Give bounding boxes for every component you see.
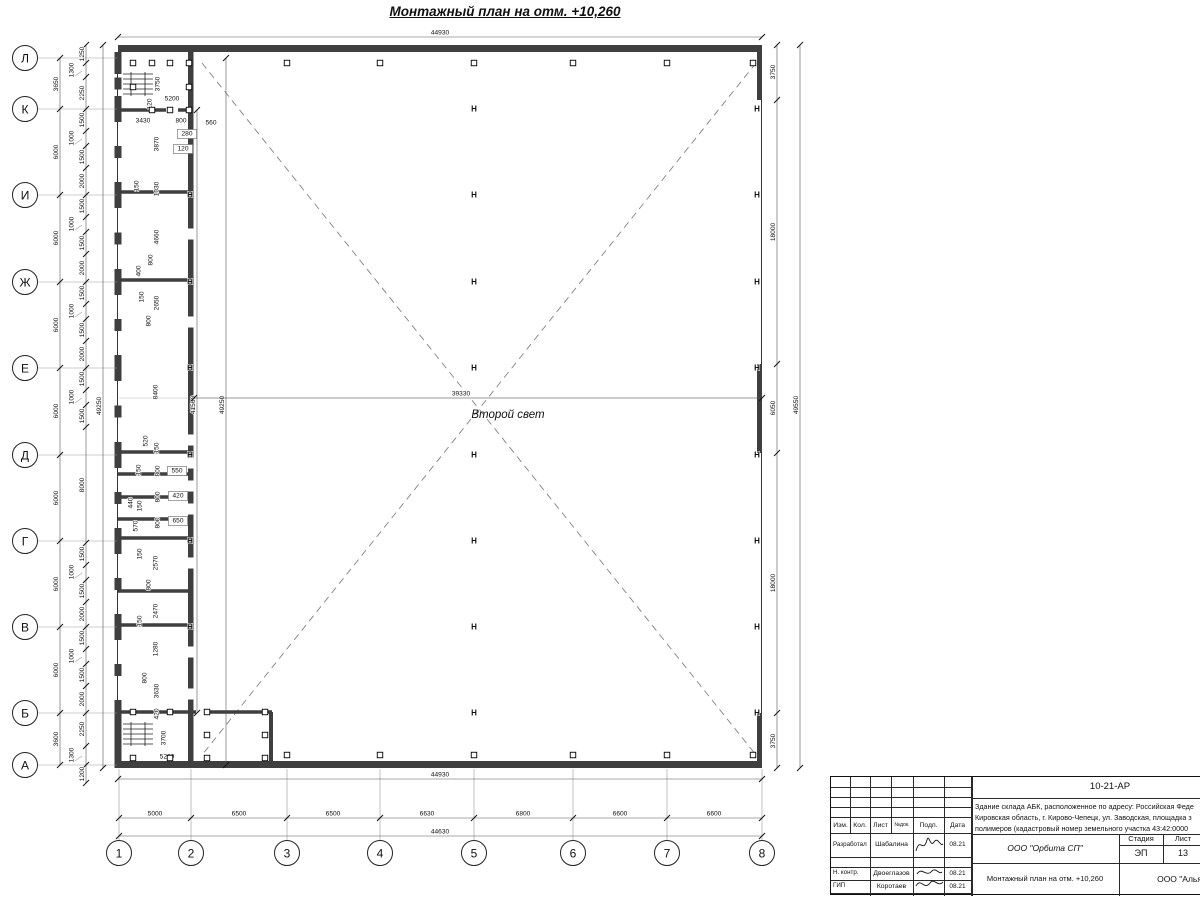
- partition-wall: [118, 536, 193, 540]
- dim-label: 1500: [79, 546, 86, 561]
- h-column-mark: Н: [471, 451, 477, 460]
- tb-company: ООО "Альянс: [1119, 863, 1200, 896]
- tb-role-developer: Разработал: [833, 833, 871, 857]
- dim-label: 150: [134, 180, 141, 191]
- dim-label: 6600: [613, 811, 628, 818]
- left-wall-pier: [115, 319, 122, 331]
- dim-label: 6000: [53, 403, 60, 418]
- dim-leader: [75, 312, 82, 317]
- dim-leader: [75, 756, 82, 761]
- h-column-mark: Н: [187, 623, 193, 632]
- tb-description-line1: Здание склада АБК, расположенное по адре…: [975, 801, 1194, 812]
- dim-label: 550: [171, 468, 182, 475]
- left-wall-pier: [115, 78, 122, 90]
- tb-sheet-label: Лист: [1163, 834, 1200, 845]
- h-column-mark: Н: [754, 364, 760, 373]
- dim-label: 8400: [153, 384, 160, 399]
- top-wall: [118, 45, 762, 52]
- dim-label: 1000: [69, 389, 76, 404]
- column-square: [204, 755, 210, 761]
- left-wall-pier: [115, 406, 122, 418]
- tb-col-izm: Изм.: [831, 818, 850, 833]
- left-wall-pier: [115, 664, 122, 676]
- dim-label: 800: [155, 465, 162, 476]
- h-column-mark: Н: [471, 191, 477, 200]
- tb-line: [831, 807, 971, 808]
- tb-name-developer: Шабалина: [870, 833, 913, 857]
- axis-row-label: Е: [21, 362, 29, 376]
- dim-label: 2000: [79, 260, 86, 275]
- tb-line: [831, 857, 971, 858]
- dim-leader: [75, 657, 82, 662]
- dim-label: 6630: [420, 811, 435, 818]
- h-column-mark: Н: [187, 364, 193, 373]
- bottom-wall: [118, 761, 762, 768]
- dim-label: 3650: [53, 76, 60, 91]
- dim-label: 440: [128, 497, 135, 508]
- dim-label: 5200: [165, 96, 180, 103]
- dim-label: 6000: [53, 230, 60, 245]
- dim-label: 18000: [770, 574, 777, 593]
- dim-label: 6000: [53, 490, 60, 505]
- column-square: [570, 60, 576, 66]
- h-column-mark: Н: [187, 451, 193, 460]
- dim-label: 2250: [79, 85, 86, 100]
- dim-label: 44630: [431, 829, 450, 836]
- dim-label: 150: [137, 615, 144, 626]
- tb-stage-label: Стадия: [1119, 834, 1163, 845]
- dim-label: 1500: [79, 667, 86, 682]
- partition-wall: [118, 278, 193, 282]
- door-opening: [187, 558, 195, 569]
- dim-label: 1500: [79, 285, 86, 300]
- tb-name-gip: Коротаев: [870, 880, 913, 893]
- dim-label: 2000: [79, 346, 86, 361]
- axis-col-label: 5: [471, 847, 478, 861]
- h-column-mark: Н: [471, 709, 477, 718]
- dim-label: 570: [133, 520, 140, 531]
- tb-doc-code: 10-21-АР: [971, 777, 1200, 798]
- dim-leader: [75, 71, 82, 76]
- column-square: [471, 752, 477, 758]
- tb-date-ncontrol: 08.21: [944, 867, 971, 880]
- dim-label: 2000: [79, 173, 86, 188]
- column-square: [262, 755, 268, 761]
- dim-label: 2000: [79, 691, 86, 706]
- dim-leader: [75, 573, 82, 578]
- tb-col-data: Дата: [944, 818, 971, 833]
- dim-label: 1030: [154, 181, 161, 196]
- h-column-mark: Н: [471, 537, 477, 546]
- dim-label: 1300: [69, 62, 76, 77]
- tb-role-gip: ГИП: [833, 880, 871, 893]
- axis-col-label: 7: [664, 847, 671, 861]
- dim-label: 1500: [79, 630, 86, 645]
- axis-col-label: 8: [759, 847, 766, 861]
- axis-col-label: 6: [570, 847, 577, 861]
- tb-org: ООО "Орбита СП": [971, 834, 1119, 863]
- dim-label: 1000: [69, 303, 76, 318]
- column-square: [130, 709, 136, 715]
- signature-developer: [914, 834, 944, 856]
- dim-label: 1500: [79, 149, 86, 164]
- column-square: [377, 60, 383, 66]
- axis-row-label: Д: [21, 449, 29, 463]
- dim-label: 3430: [136, 118, 151, 125]
- h-column-mark: Н: [754, 278, 760, 287]
- axis-col-label: 3: [284, 847, 291, 861]
- column-square: [167, 60, 173, 66]
- h-column-mark: Н: [754, 709, 760, 718]
- column-square: [149, 60, 155, 66]
- dim-label: 2000: [79, 606, 86, 621]
- column-square: [167, 755, 173, 761]
- dim-label: 560: [205, 120, 216, 127]
- dim-label: 44930: [431, 30, 450, 37]
- dim-label: 1500: [79, 408, 86, 423]
- dim-label: 800: [148, 254, 155, 265]
- dim-label: 6500: [232, 811, 247, 818]
- dim-label: 39330: [452, 391, 471, 398]
- axis-row-label: Б: [21, 707, 29, 721]
- dim-label: 2570: [153, 555, 160, 570]
- tb-description-line3: полимеров (кадастровый номер земельного …: [975, 823, 1194, 834]
- dim-label: 1500: [79, 371, 86, 386]
- left-wall-pier: [115, 233, 122, 245]
- column-square: [186, 84, 192, 90]
- dim-label: 6000: [53, 576, 60, 591]
- signature-ncontrol-gip: [914, 866, 944, 893]
- dim-label: 150: [137, 500, 144, 511]
- dim-label: 1500: [79, 112, 86, 127]
- tb-date-gip: 08.21: [944, 880, 971, 893]
- dim-label: 150: [137, 548, 144, 559]
- dim-label: 2650: [154, 295, 161, 310]
- door-opening: [187, 229, 195, 240]
- dim-leader: [75, 139, 82, 144]
- column-square: [570, 752, 576, 758]
- axis-row-label: К: [22, 103, 29, 117]
- dim-label: 1000: [69, 216, 76, 231]
- right-wall-segment-top: [757, 52, 762, 100]
- tb-date-developer: 08.21: [944, 833, 971, 857]
- left-wall-pier: [115, 578, 122, 590]
- column-square: [149, 107, 155, 113]
- dim-label: 1250: [79, 46, 86, 61]
- left-wall-pier: [115, 146, 122, 158]
- dim-leader: [75, 225, 82, 230]
- tb-stage-value: ЭП: [1119, 845, 1163, 863]
- h-column-mark: Н: [754, 537, 760, 546]
- axis-row-label: Ж: [19, 276, 30, 290]
- dim-label: 44930: [431, 772, 450, 779]
- dim-label: 800: [142, 672, 149, 683]
- dim-label: 150: [139, 291, 146, 302]
- dim-label: 4660: [154, 229, 161, 244]
- door-opening: [187, 435, 195, 446]
- door-opening: [187, 317, 195, 328]
- column-square: [750, 60, 756, 66]
- dim-label: 1500: [79, 235, 86, 250]
- dim-label: 1000: [69, 130, 76, 145]
- column-square: [664, 60, 670, 66]
- dim-label: 800: [146, 315, 153, 326]
- left-wall-corner-top: [115, 52, 122, 74]
- partition-wall: [118, 108, 166, 112]
- tb-col-podp: Подп.: [913, 818, 944, 833]
- dim-label: 49250: [219, 396, 226, 415]
- floor-plan-canvas: Второй свет ЛКИЖЕДГВБА123456784493044930…: [0, 0, 1200, 900]
- dim-label: 1000: [69, 564, 76, 579]
- dim-label: 3750: [770, 64, 777, 79]
- h-column-mark: Н: [187, 191, 193, 200]
- tb-line: [831, 797, 971, 798]
- tb-line: [831, 893, 971, 894]
- dim-label: 1500: [79, 322, 86, 337]
- axis-col-label: 4: [377, 847, 384, 861]
- dim-label: 1280: [153, 641, 160, 656]
- column-square: [471, 60, 477, 66]
- dim-label: 3750: [155, 76, 162, 91]
- tb-col-list: Лист: [870, 818, 891, 833]
- h-column-mark: Н: [754, 191, 760, 200]
- axis-col-label: 2: [188, 847, 195, 861]
- axis-row-label: И: [21, 189, 30, 203]
- axis-row-label: Г: [22, 535, 29, 549]
- door-opening: [187, 647, 195, 658]
- dim-label: 1500: [79, 583, 86, 598]
- dim-label: 3750: [770, 733, 777, 748]
- dim-label: 1500: [79, 198, 86, 213]
- dim-label: 49250: [96, 397, 103, 416]
- dim-label: 800: [155, 517, 162, 528]
- dim-label: 1000: [69, 648, 76, 663]
- tb-name-ncontrol: Двоеглазов: [870, 867, 913, 880]
- dim-label: 120: [177, 146, 188, 153]
- column-square: [186, 60, 192, 66]
- staircase-bottom: [123, 722, 153, 746]
- column-square: [130, 84, 136, 90]
- axis-row-label: А: [21, 759, 29, 773]
- tb-description-line2: Кировская область, г. Кирово-Чепецк, ул.…: [975, 812, 1194, 823]
- door-opening: [187, 504, 195, 515]
- dim-label: 1300: [69, 747, 76, 762]
- axis-col-label: 1: [116, 847, 123, 861]
- dim-label: 3700: [161, 730, 168, 745]
- h-column-mark: Н: [471, 278, 477, 287]
- tb-line: [971, 798, 1200, 799]
- dim-label: 420: [172, 493, 183, 500]
- h-column-mark: Н: [471, 105, 477, 114]
- column-square: [186, 107, 192, 113]
- dim-label: 800: [175, 118, 186, 125]
- dim-label: 150: [136, 464, 143, 475]
- column-square: [204, 732, 210, 738]
- partition-wall: [118, 623, 193, 627]
- column-square: [167, 107, 173, 113]
- left-wall-pier: [115, 733, 122, 745]
- dim-label: 420: [154, 708, 161, 719]
- tb-role-ncontrol: Н. контр.: [833, 867, 871, 880]
- dim-label: 150: [154, 442, 161, 453]
- dim-label: 1200: [79, 766, 86, 781]
- column-square: [377, 752, 383, 758]
- column-square: [204, 709, 210, 715]
- column-square: [167, 709, 173, 715]
- dim-label: 8000: [79, 477, 86, 492]
- dim-label: 3630: [154, 683, 161, 698]
- h-column-mark: Н: [187, 537, 193, 546]
- tb-sheet-value: 13: [1163, 845, 1200, 863]
- dim-label: 6000: [53, 144, 60, 159]
- column-square: [130, 60, 136, 66]
- h-column-mark: Н: [187, 278, 193, 287]
- dim-label: 2250: [79, 721, 86, 736]
- staircase-top: [123, 72, 153, 96]
- dim-label: 3870: [154, 136, 161, 151]
- tb-line: [831, 787, 971, 788]
- column-square: [284, 60, 290, 66]
- tb-col-ndok: №док.: [891, 818, 913, 833]
- dim-label: 650: [172, 518, 183, 525]
- dim-label: 49550: [793, 396, 800, 415]
- dim-label: 5000: [148, 811, 163, 818]
- stair-room-wall: [269, 712, 273, 762]
- column-square: [262, 709, 268, 715]
- column-square: [664, 752, 670, 758]
- h-column-mark: Н: [471, 623, 477, 632]
- dim-label: 800: [146, 579, 153, 590]
- dim-label: 6050: [770, 400, 777, 415]
- axis-row-label: Л: [21, 52, 29, 66]
- door-opening: [187, 481, 195, 492]
- h-column-mark: Н: [471, 364, 477, 373]
- right-wall-segment-mid: [757, 364, 762, 453]
- h-column-mark: Н: [754, 105, 760, 114]
- dim-label: 2470: [153, 603, 160, 618]
- tb-doc-title: Монтажный план на отм. +10,260: [971, 863, 1119, 896]
- column-square: [750, 752, 756, 758]
- dim-leader: [75, 398, 82, 403]
- dim-label: 280: [181, 131, 192, 138]
- tb-col-kol: Кол.: [850, 818, 870, 833]
- dim-label: 6800: [516, 811, 531, 818]
- column-square: [130, 755, 136, 761]
- dim-label: 18000: [770, 223, 777, 242]
- axis-row-label: В: [21, 621, 29, 635]
- dim-label: 6000: [53, 317, 60, 332]
- room-label: Второй свет: [471, 409, 545, 421]
- tb-description: Здание склада АБК, расположенное по адре…: [975, 801, 1194, 834]
- dim-label: 6600: [707, 811, 722, 818]
- drawing-sheet: { "page_title": "Монтажный план на отм. …: [0, 0, 1200, 900]
- dim-label: 800: [155, 491, 162, 502]
- dim-label: 6000: [53, 662, 60, 677]
- column-square: [284, 752, 290, 758]
- dim-label: 520: [143, 435, 150, 446]
- right-wall-segment-bottom: [757, 713, 762, 761]
- dim-label: 6500: [326, 811, 341, 818]
- column-square: [262, 732, 268, 738]
- dim-label: 400: [136, 265, 143, 276]
- h-column-mark: Н: [754, 451, 760, 460]
- door-opening: [187, 689, 195, 700]
- partition-wall: [118, 589, 193, 593]
- dim-label: 3600: [53, 731, 60, 746]
- h-column-mark: Н: [754, 623, 760, 632]
- titleblock: 10-21-АР Здание склада АБК, расположенно…: [830, 776, 1200, 895]
